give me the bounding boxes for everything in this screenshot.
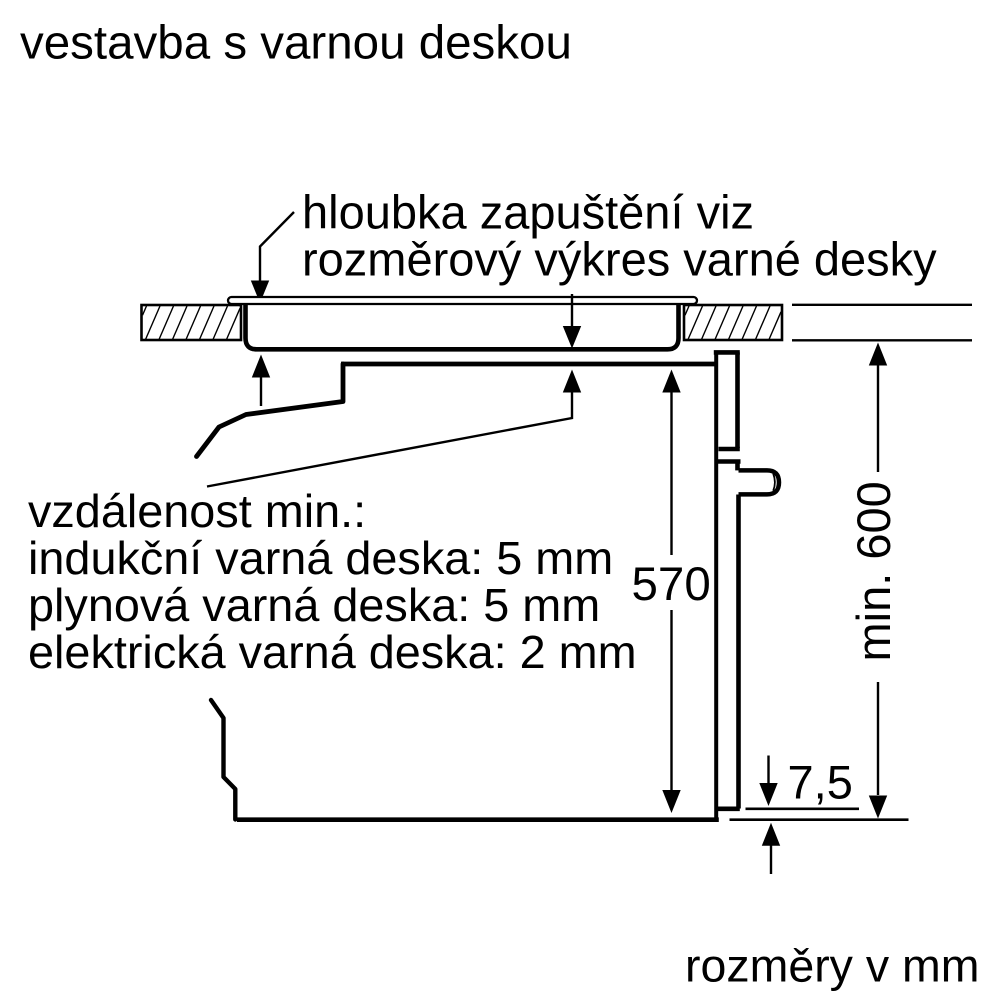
svg-text:rozměrový výkres varné desky: rozměrový výkres varné desky	[302, 233, 937, 286]
svg-text:7,5: 7,5	[788, 756, 853, 809]
svg-text:vestavba s varnou deskou: vestavba s varnou deskou	[20, 17, 572, 70]
svg-text:570: 570	[632, 558, 711, 611]
svg-text:vzdálenost min.:: vzdálenost min.:	[28, 485, 366, 537]
svg-text:min. 600: min. 600	[847, 481, 900, 661]
svg-text:elektrická varná deska: 2 mm: elektrická varná deska: 2 mm	[28, 626, 637, 678]
svg-text:rozměry v mm: rozměry v mm	[685, 940, 980, 992]
svg-text:hloubka zapuštění viz: hloubka zapuštění viz	[302, 186, 754, 239]
svg-text:indukční varná deska: 5 mm: indukční varná deska: 5 mm	[28, 532, 613, 584]
svg-text:plynová varná deska: 5 mm: plynová varná deska: 5 mm	[28, 579, 600, 631]
